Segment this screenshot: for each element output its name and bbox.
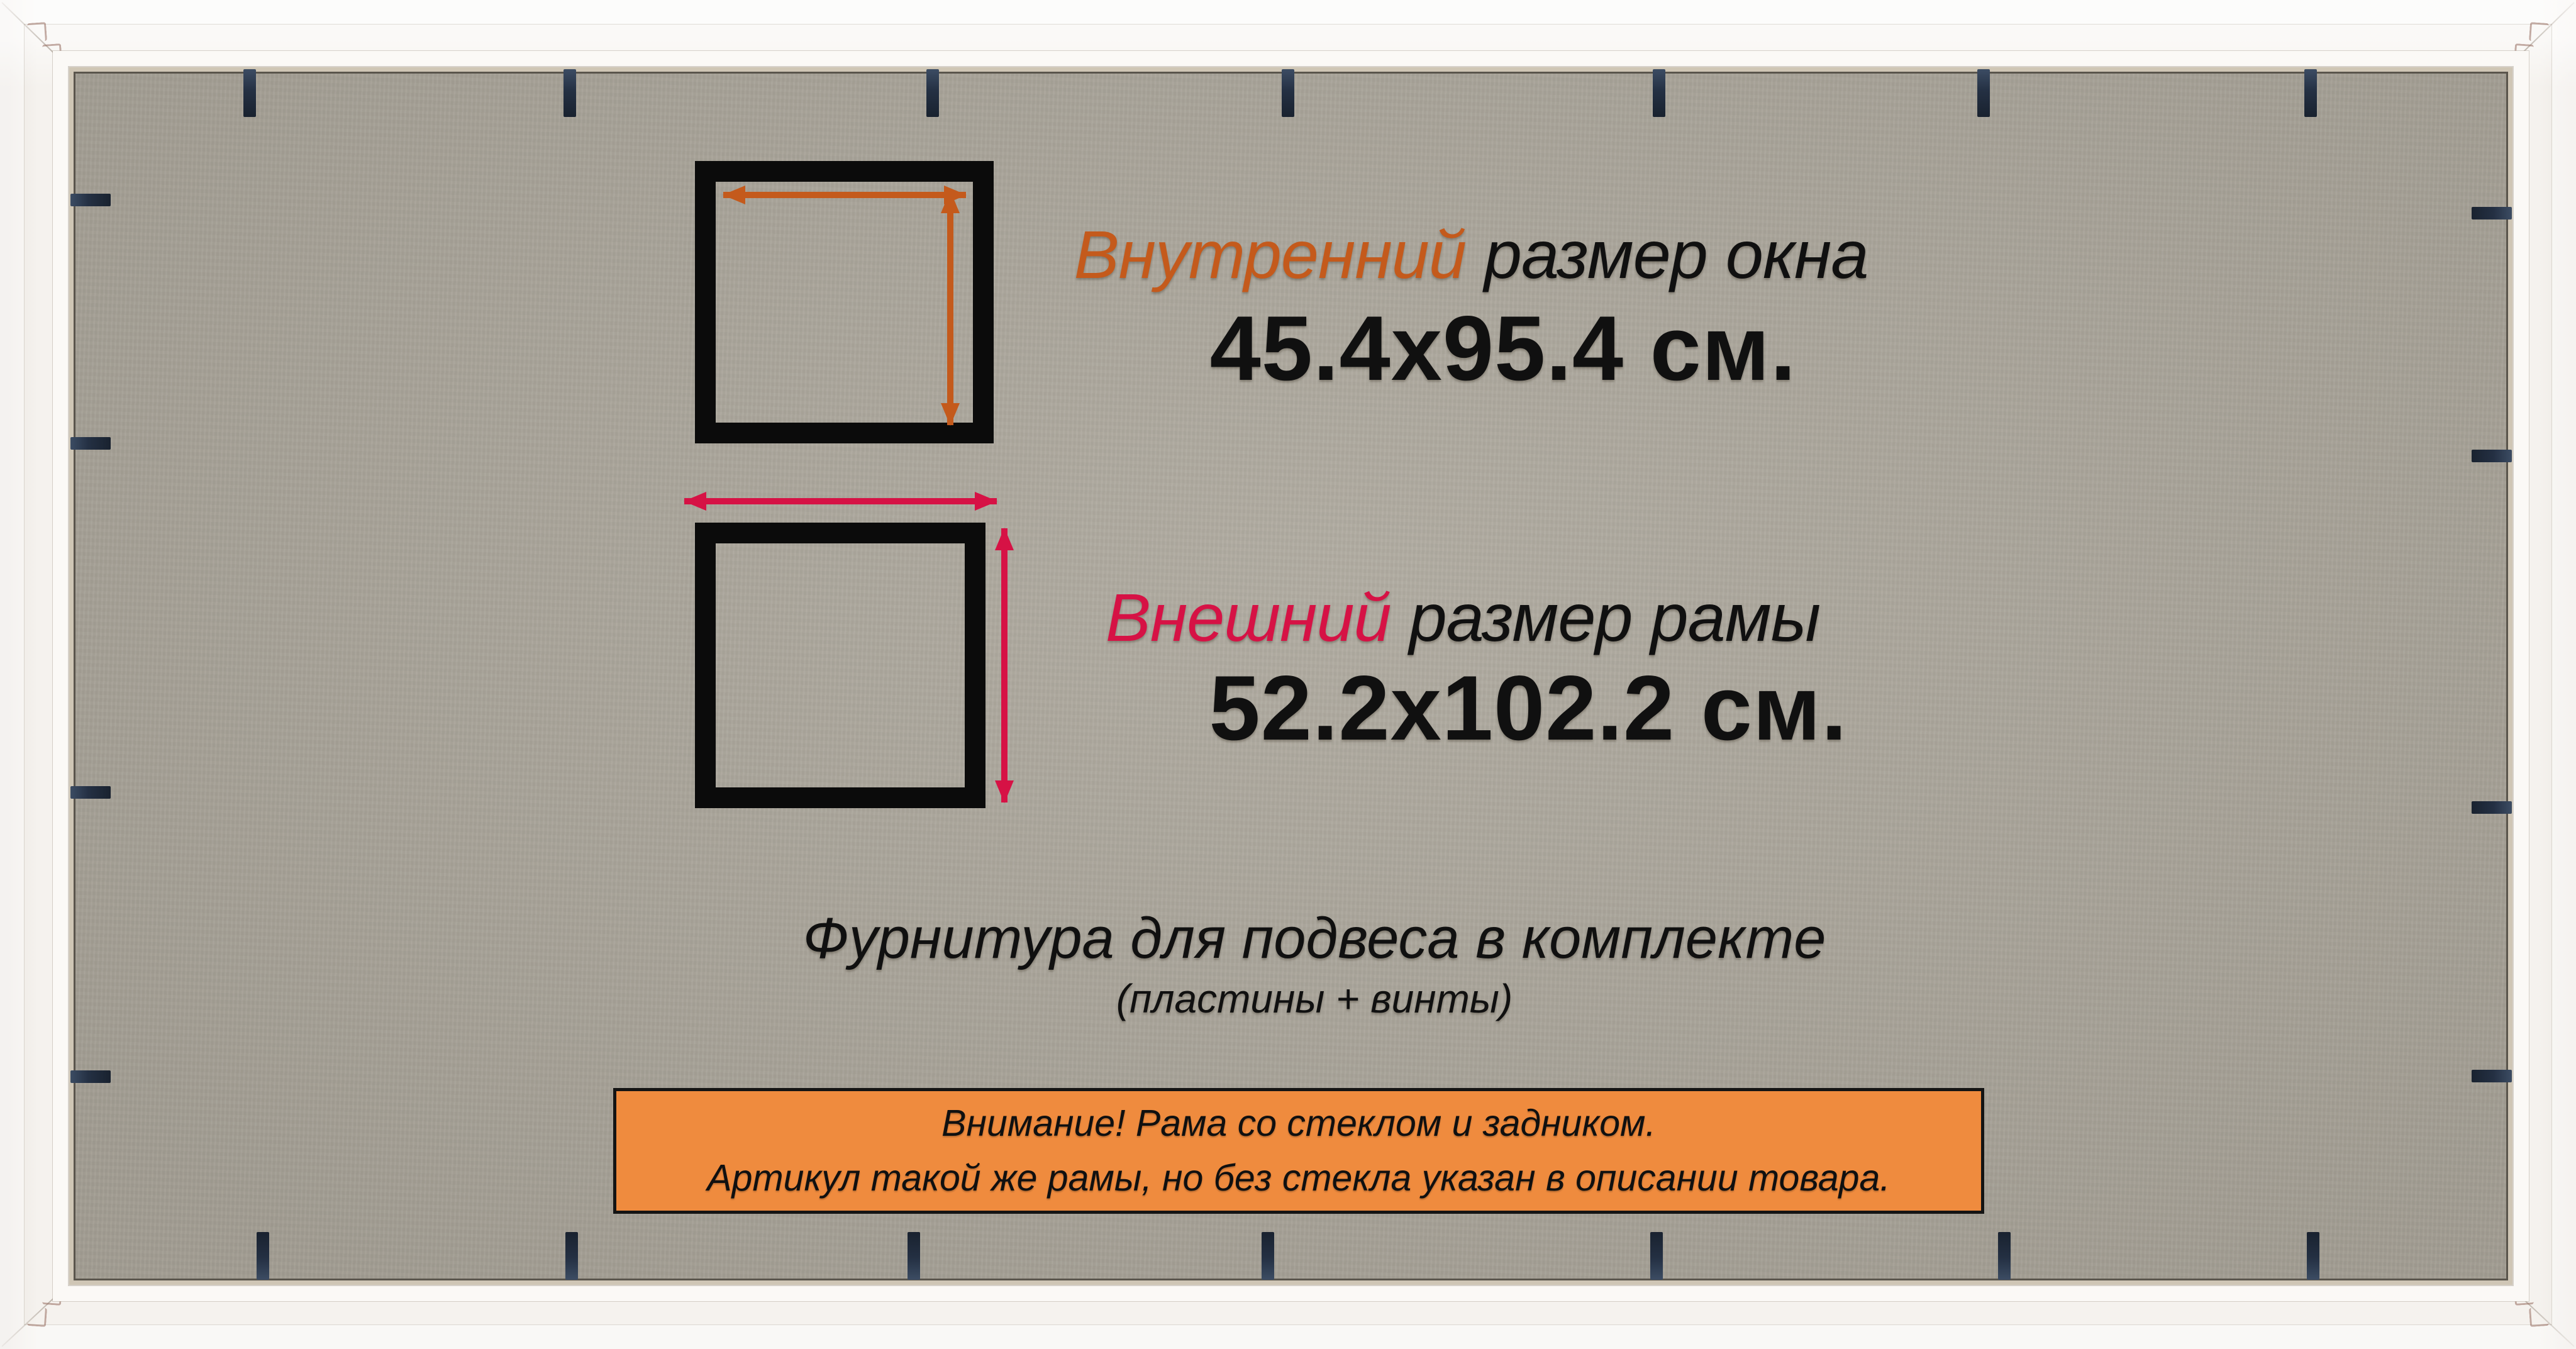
- flex-clip: [1262, 1232, 1274, 1280]
- notice-line-1: Внимание! Рама со стеклом и задником.: [941, 1096, 1656, 1151]
- hardware-note-detail: (пластины + винты): [799, 976, 1830, 1023]
- outer-size-square: [695, 523, 985, 808]
- flex-clip: [257, 1232, 269, 1280]
- flex-clip: [565, 1232, 578, 1280]
- flex-clip: [908, 1232, 920, 1280]
- corner-mark: [27, 1307, 47, 1327]
- flex-clip: [2472, 450, 2512, 462]
- flex-clip: [2304, 69, 2317, 117]
- corner-mark: [2529, 22, 2549, 42]
- outer-height-arrow: [995, 528, 1014, 802]
- flex-clip: [1282, 69, 1294, 117]
- flex-clip: [563, 69, 576, 117]
- inner-size-value: 45.4x95.4 см.: [1044, 298, 1962, 399]
- inner-size-label-accent: Внутренний: [1074, 216, 1466, 292]
- flex-clip: [2472, 801, 2512, 814]
- flex-clip: [70, 437, 111, 450]
- inner-height-arrow: [941, 191, 960, 425]
- flex-clip: [2472, 207, 2512, 219]
- flex-clip: [1998, 1232, 2011, 1280]
- flex-clip: [70, 194, 111, 206]
- outer-size-label-accent: Внешний: [1106, 579, 1391, 655]
- flex-clip: [70, 786, 111, 799]
- flex-clip: [926, 69, 939, 117]
- hardware-note: Фурнитура для подвеса в комплекте: [799, 906, 1830, 972]
- flex-clip: [1977, 69, 1990, 117]
- outer-size-label: Внешний размер рамы: [1004, 580, 1922, 656]
- notice-line-2: Артикул такой же рамы, но без стекла ука…: [707, 1151, 1890, 1206]
- flex-clip: [70, 1070, 111, 1083]
- corner-mark: [2529, 1307, 2549, 1327]
- outer-size-value: 52.2x102.2 см.: [1069, 658, 1987, 759]
- flex-clip: [2307, 1232, 2319, 1280]
- flex-clip: [243, 69, 256, 117]
- flex-clip: [1650, 1232, 1663, 1280]
- inner-size-label-rest: размер окна: [1466, 216, 1868, 292]
- inner-width-arrow: [723, 186, 966, 204]
- notice-banner: Внимание! Рама со стеклом и задником. Ар…: [613, 1088, 1984, 1214]
- frame-back-photo: Внутренний размер окна 45.4x95.4 см. Вне…: [0, 0, 2576, 1349]
- inner-size-label: Внутренний размер окна: [1012, 217, 1930, 293]
- outer-width-arrow: [684, 492, 997, 511]
- outer-size-label-rest: размер рамы: [1391, 579, 1821, 655]
- flex-clip: [1653, 69, 1665, 117]
- corner-mark: [27, 22, 47, 42]
- flex-clip: [2472, 1070, 2512, 1082]
